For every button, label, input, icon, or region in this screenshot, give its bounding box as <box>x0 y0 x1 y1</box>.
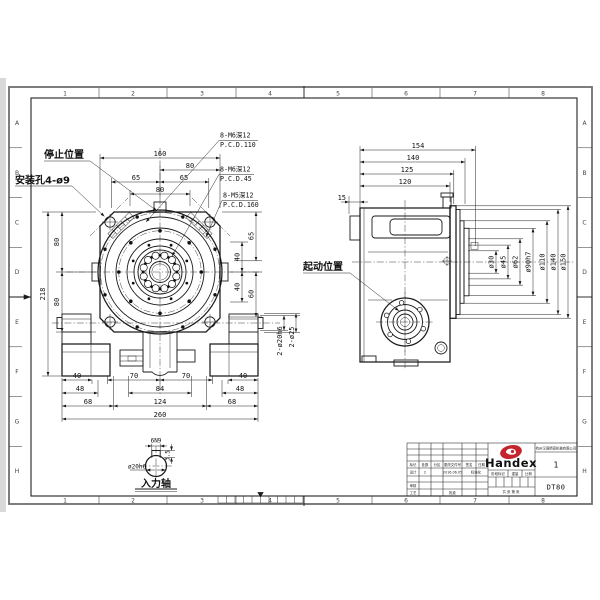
rev-header: 标记 <box>410 462 417 467</box>
company-name: 杭州汉德精密机械有限公司 <box>536 445 577 450</box>
start-position-label: 起动位置 <box>302 260 343 273</box>
hole-note-2-line1: 8-M6深12 <box>220 165 250 174</box>
dim-dia150: ø150 <box>560 254 568 271</box>
col-label: 8 <box>541 91 545 98</box>
dim-65-right: 65 <box>180 174 188 182</box>
side-view-dimensions <box>303 146 571 318</box>
dim-80-left-upper: 80 <box>53 238 61 246</box>
dim-40-bl: 40 <box>73 372 81 380</box>
row-label: G <box>582 419 587 426</box>
col-label: 3 <box>200 498 204 505</box>
row-label: G <box>15 419 20 426</box>
rev-header: 分区 <box>434 462 441 467</box>
col-label: 7 <box>473 498 477 505</box>
rev-header: 签名 <box>466 462 473 467</box>
col-label: 5 <box>336 498 340 505</box>
dim-15: 15 <box>338 194 346 202</box>
row-label: E <box>15 319 19 326</box>
dim-260: 260 <box>154 411 167 419</box>
dim-68-right: 68 <box>228 398 236 406</box>
dim-70-left: 70 <box>130 372 138 380</box>
dim-80-center: 80 <box>156 186 164 194</box>
dim-2xd20h6: 2-ø20h6 <box>276 326 284 356</box>
col-label: 1 <box>63 498 67 505</box>
dim-160: 160 <box>154 150 167 158</box>
dim-key-depth: 3.5 <box>165 450 172 461</box>
hole-note-1-line1: 8-M6深12 <box>220 131 250 140</box>
dim-2xd25: 2-ø25 <box>288 326 296 347</box>
dim-key-6n9: 6N9 <box>151 438 162 445</box>
row-label: C <box>15 220 19 227</box>
design-count: 2 <box>424 470 426 474</box>
dim-70-right: 70 <box>182 372 190 380</box>
dim-218: 218 <box>39 288 47 301</box>
row-label: H <box>582 468 587 475</box>
rev-header: 日期 <box>478 462 485 467</box>
row-label: A <box>15 120 20 127</box>
col-label: 4 <box>268 91 272 98</box>
dim-dia45: ø45 <box>500 256 508 269</box>
col-label: 1 <box>63 91 67 98</box>
dim-125: 125 <box>401 166 414 174</box>
drawing-sheet: 1 2 3 4 5 6 7 8 1 2 3 4 5 6 7 8 A B C D … <box>0 0 600 600</box>
side-view <box>350 193 574 370</box>
dim-40-right-lower: 40 <box>234 283 242 291</box>
dim-124: 124 <box>154 398 167 406</box>
rev-header: 更改文件号 <box>444 462 462 467</box>
scale-label: 比例 <box>525 471 532 476</box>
dim-dia30: ø30 <box>488 256 496 269</box>
sheet-note: 共 张 第 张 <box>503 489 520 494</box>
dim-120: 120 <box>399 178 412 186</box>
quantity-value: 1 <box>553 461 558 470</box>
input-shaft-texts: 6N9 3.5 ø20h6 入力轴 <box>128 438 172 491</box>
dim-60-right-col: 60 <box>248 290 256 298</box>
dim-65-right-col: 65 <box>248 232 256 240</box>
dim-dia110: ø110 <box>539 254 547 271</box>
input-shaft-label: 入力轴 <box>141 477 171 490</box>
dim-dia62: ø62 <box>512 256 520 269</box>
col-label: 6 <box>404 91 408 98</box>
hole-note-3-line1: 8-M5深12 <box>223 191 253 200</box>
row-label: F <box>583 369 587 376</box>
col-label: 5 <box>336 91 340 98</box>
col-label: 2 <box>131 91 135 98</box>
col-label: 6 <box>404 498 408 505</box>
col-label: 4 <box>268 498 272 505</box>
row-label: D <box>582 269 587 276</box>
handex-logo-dot <box>511 450 514 453</box>
brand-name: Handex <box>485 456 537 470</box>
col-label: 8 <box>541 498 545 505</box>
audit-label: 审核 <box>410 483 417 488</box>
hole-note-1-line2: P.C.D.110 <box>220 141 256 149</box>
mount-holes-label: 安装孔4-ø9 <box>15 174 70 187</box>
model-number: DT80 <box>547 484 566 492</box>
row-label: D <box>15 269 20 276</box>
weight-label: 重量 <box>512 471 519 476</box>
engineering-drawing-svg: 1 2 3 4 5 6 7 8 1 2 3 4 5 6 7 8 A B C D … <box>0 0 600 600</box>
dim-84: 84 <box>156 385 164 393</box>
col-label: 3 <box>200 91 204 98</box>
dim-48-right: 48 <box>236 385 244 393</box>
row-label: A <box>582 120 587 127</box>
dim-80-left-lower: 80 <box>53 298 61 306</box>
row-label: E <box>583 319 587 326</box>
dim-68-left: 68 <box>84 398 92 406</box>
dim-154: 154 <box>412 142 425 150</box>
dim-48-left: 48 <box>76 385 84 393</box>
hole-note-2-line2: P.C.D.45 <box>220 175 252 183</box>
rev-header: 处数 <box>422 462 429 467</box>
craft-label: 工艺 <box>410 490 417 495</box>
row-label: C <box>582 220 586 227</box>
standardize-label: 标准化 <box>471 469 482 474</box>
col-label: 7 <box>473 91 477 98</box>
design-label: 设计 <box>410 469 417 474</box>
col-label: 2 <box>131 498 135 505</box>
row-label: B <box>582 170 586 177</box>
dim-40-br: 40 <box>239 372 247 380</box>
dim-dia140: ø140 <box>550 254 558 271</box>
row-label: H <box>15 468 20 475</box>
hole-note-3-line2: P.C.D.160 <box>223 201 259 209</box>
page-edge-shadow <box>0 78 6 512</box>
dim-80-top-right: 80 <box>186 162 194 170</box>
dim-65-left: 65 <box>132 174 140 182</box>
dim-140: 140 <box>407 154 420 162</box>
stop-position-label: 停止位置 <box>44 148 84 161</box>
dim-shaft-dia: ø20h6 <box>128 464 146 471</box>
approve-label: 批准 <box>449 490 456 495</box>
dim-dia90h7: ø90h7 <box>525 251 533 272</box>
dim-40-right-upper: 40 <box>234 253 242 261</box>
row-label: F <box>15 369 19 376</box>
design-date: 2016.06.05 <box>443 470 462 474</box>
stage-label: 阶段标记 <box>491 471 505 476</box>
